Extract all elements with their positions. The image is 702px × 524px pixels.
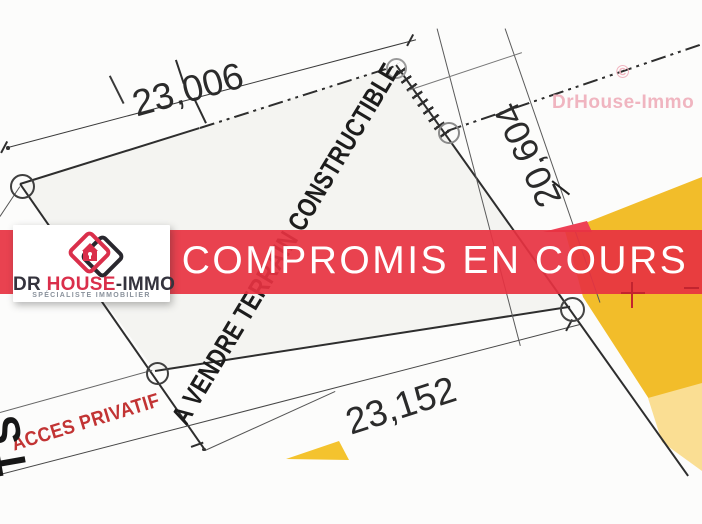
witness-line: [109, 75, 124, 103]
survey-dash-mark: [684, 287, 699, 289]
dimension-end-dot: [6, 146, 10, 150]
survey-marker-bottom-left: [146, 362, 169, 385]
status-banner-label: COMPROMIS EN COURS: [182, 239, 689, 283]
street-label-partial: TS: [0, 407, 37, 478]
road-thin-line: [408, 52, 522, 91]
survey-cross-icon: [631, 282, 633, 308]
logo-house-icon: [82, 243, 98, 251]
listing-plan-image: 23,006 23,152 20,604 A VENDRE TERRAIN CO…: [0, 0, 702, 524]
survey-cross-icon: [621, 292, 645, 294]
dimension-end-dot: [202, 448, 206, 452]
survey-marker-bottom-right: [560, 297, 585, 322]
watermark-brand: DrHouse-Immo: [552, 92, 694, 114]
agency-subtitle: Spécialiste Immobilier: [13, 292, 170, 299]
survey-marker-top-left: [10, 174, 35, 199]
dimension-label-top: 23,006: [128, 55, 248, 126]
agency-logo-card: Dr House-Immo Spécialiste Immobilier: [13, 225, 170, 302]
dimension-label-bottom: 23,152: [341, 369, 462, 444]
survey-marker-mid-right: [438, 122, 460, 144]
cadastral-limit-dashdot: [447, 43, 702, 132]
witness-line-bottom: [205, 390, 336, 450]
watermark-copyright-icon: ©: [616, 62, 629, 83]
logo-keyhole-icon-stem: [89, 255, 91, 259]
